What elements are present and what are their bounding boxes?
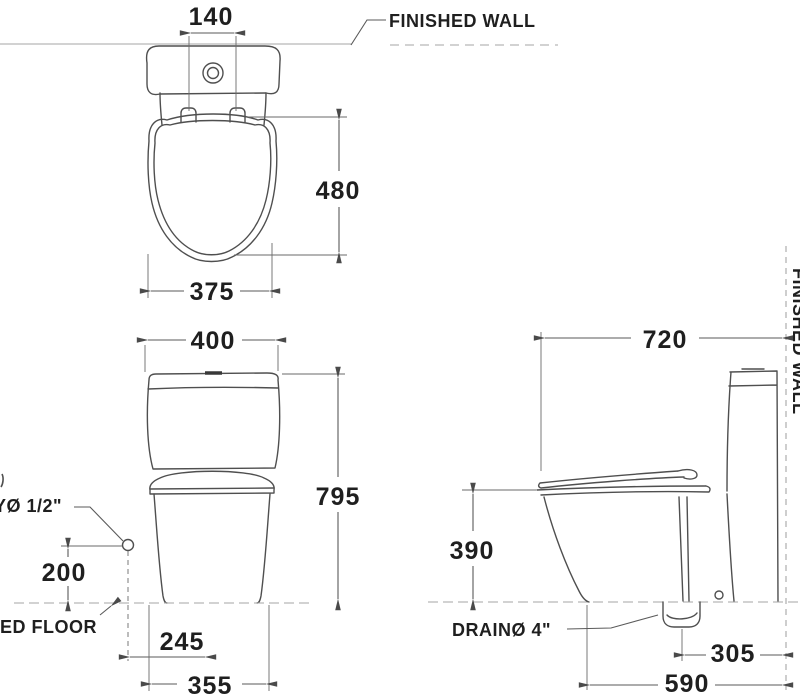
drain-pipe-inner bbox=[667, 613, 697, 619]
dimension-text-355: 355 bbox=[188, 672, 233, 699]
finished-wall-callout: FINISHED WALL bbox=[351, 11, 536, 45]
seat-lid-side bbox=[539, 471, 684, 488]
water-supply-label: YØ 1/2" bbox=[0, 496, 62, 516]
finished-floor-label: ED FLOOR bbox=[0, 617, 97, 637]
dimension-text-305: 305 bbox=[711, 640, 756, 668]
water-supply-callout: YØ 1/2" bbox=[0, 496, 123, 541]
dim-720: 720 bbox=[541, 326, 782, 471]
seat-rim-line bbox=[150, 488, 274, 489]
cut-off-text-fragment bbox=[1, 474, 3, 487]
dimension-text-200: 200 bbox=[42, 559, 87, 587]
dim-795: 795 bbox=[282, 374, 360, 599]
drawing-canvas: 140 480 375 FINISHED WALL 400 bbox=[0, 0, 800, 699]
dim-375: 375 bbox=[148, 243, 272, 306]
dim-140: 140 bbox=[189, 3, 236, 111]
dim-245: 245 bbox=[128, 551, 205, 661]
water-supply-point bbox=[123, 540, 134, 551]
leader-line bbox=[567, 615, 658, 629]
drain-callout: DRAINØ 4" bbox=[452, 615, 658, 640]
tank-lid-line bbox=[148, 387, 278, 389]
dimension-text-245: 245 bbox=[160, 628, 205, 656]
flush-button-inner bbox=[208, 68, 219, 79]
flush-button-outer bbox=[203, 63, 223, 83]
drain-pipe bbox=[663, 602, 700, 627]
dimension-text-400: 400 bbox=[191, 327, 236, 355]
dimension-text-590: 590 bbox=[665, 670, 710, 698]
dim-200: 200 bbox=[42, 546, 122, 600]
leader-line bbox=[351, 20, 386, 45]
bolt-cap bbox=[715, 591, 723, 599]
bowl-front-side bbox=[544, 497, 589, 602]
leader-line bbox=[74, 507, 123, 541]
dimension-text-375: 375 bbox=[190, 278, 235, 306]
finished-floor-callout: ED FLOOR bbox=[0, 606, 111, 637]
dimension-text-140: 140 bbox=[189, 3, 234, 31]
tank-side bbox=[727, 371, 778, 601]
seat-inner bbox=[154, 121, 271, 255]
top-view bbox=[0, 44, 558, 262]
dimension-text-480: 480 bbox=[316, 177, 361, 205]
dimension-text-795: 795 bbox=[316, 483, 361, 511]
toilet-installation-drawing: 140 480 375 FINISHED WALL 400 bbox=[0, 0, 800, 699]
finished-wall-label: FINISHED WALL bbox=[389, 11, 536, 31]
seat-outer bbox=[148, 114, 277, 262]
seat-front bbox=[150, 471, 274, 494]
dimension-text-720: 720 bbox=[643, 326, 688, 354]
drain-label: DRAINØ 4" bbox=[452, 620, 551, 640]
trap-lines bbox=[679, 497, 689, 601]
dim-480: 480 bbox=[234, 117, 360, 255]
bowl-rim-side bbox=[537, 486, 710, 495]
pedestal bbox=[154, 494, 270, 603]
leader-line bbox=[100, 606, 111, 615]
dim-390: 390 bbox=[450, 490, 536, 599]
finished-wall-side-label: FINISHED WALL bbox=[789, 268, 800, 415]
tank-front-lower bbox=[727, 494, 734, 601]
dim-305: 305 bbox=[682, 629, 782, 668]
tank-lid bbox=[147, 46, 281, 95]
dim-400: 400 bbox=[145, 327, 278, 372]
dimension-text-390: 390 bbox=[450, 537, 495, 565]
